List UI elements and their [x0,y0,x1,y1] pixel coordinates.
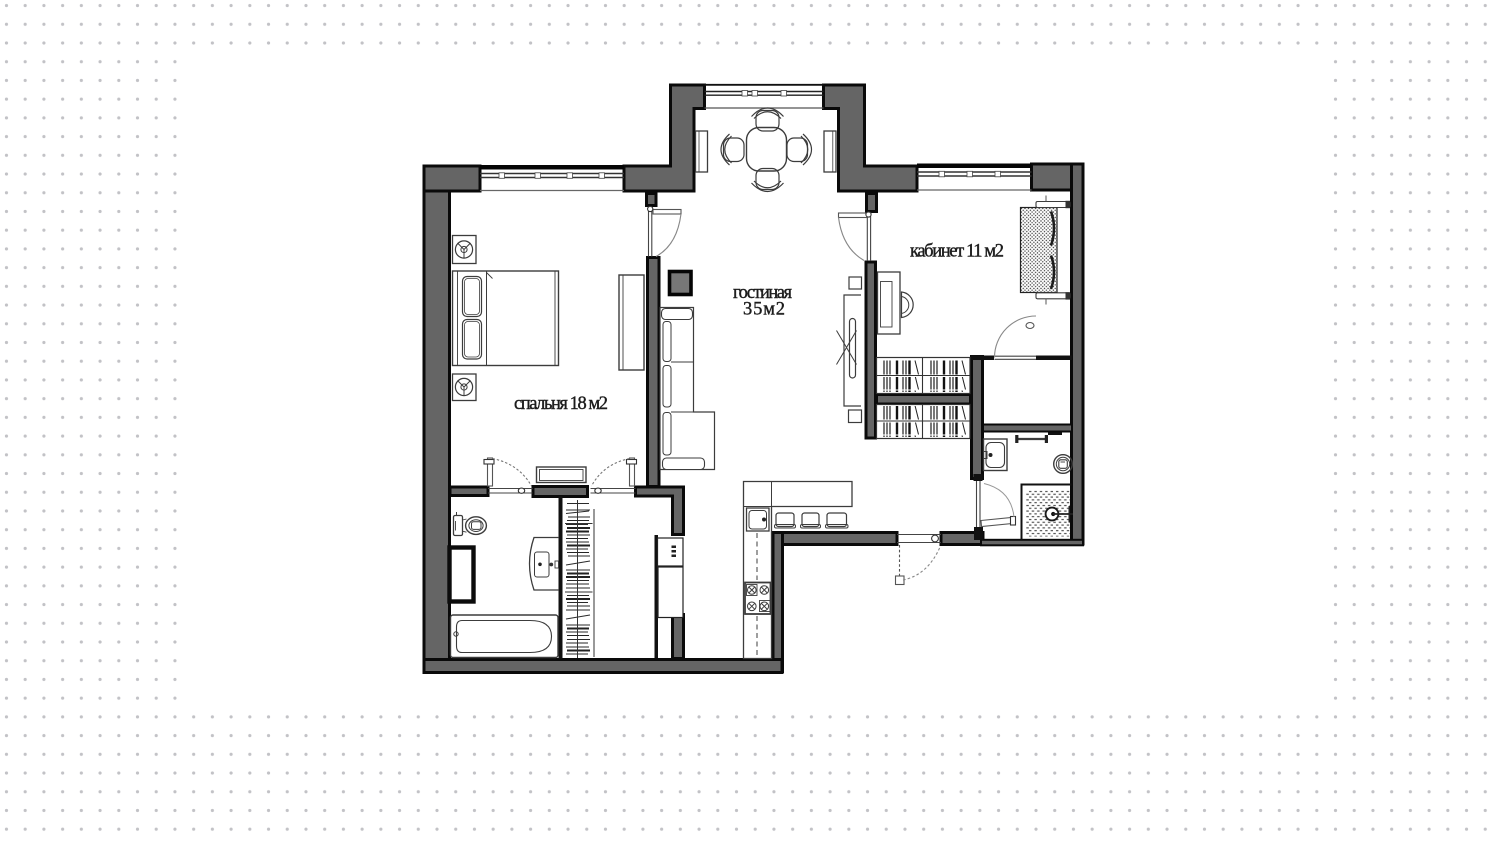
svg-text:35м2: 35м2 [743,300,785,320]
svg-text:кабинет 11 м2: кабинет 11 м2 [910,242,1004,262]
svg-text:спальня 18 м2: спальня 18 м2 [514,394,608,414]
